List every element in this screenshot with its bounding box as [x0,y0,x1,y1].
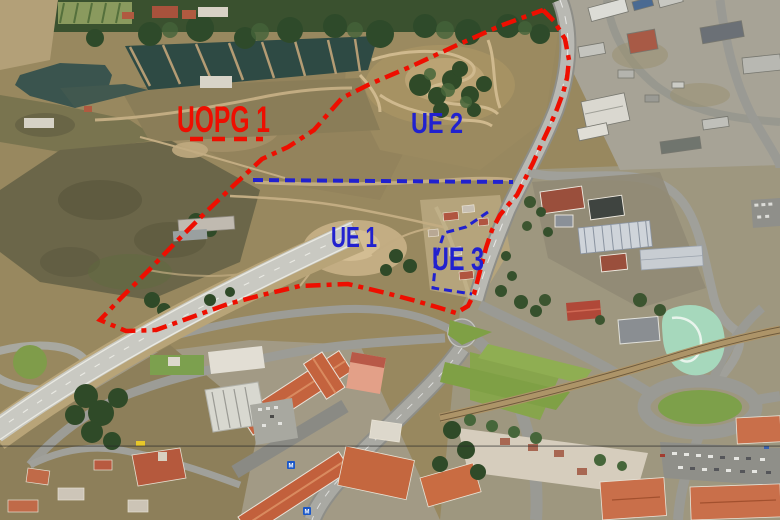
uopg1-label: UOPG 1 [177,99,270,140]
ue1-label: UE 1 [331,222,377,254]
scan-line-artifact [0,445,780,446]
aerial-photo: M M [0,0,780,520]
svg-text:M: M [289,464,294,470]
aerial-planning-map: M M UOPG 1 UE 2 UE 1 UE 3 [0,0,780,520]
svg-text:M: M [305,510,310,516]
ue3-label: UE 3 [432,241,484,277]
ue2-label: UE 2 [411,108,463,140]
